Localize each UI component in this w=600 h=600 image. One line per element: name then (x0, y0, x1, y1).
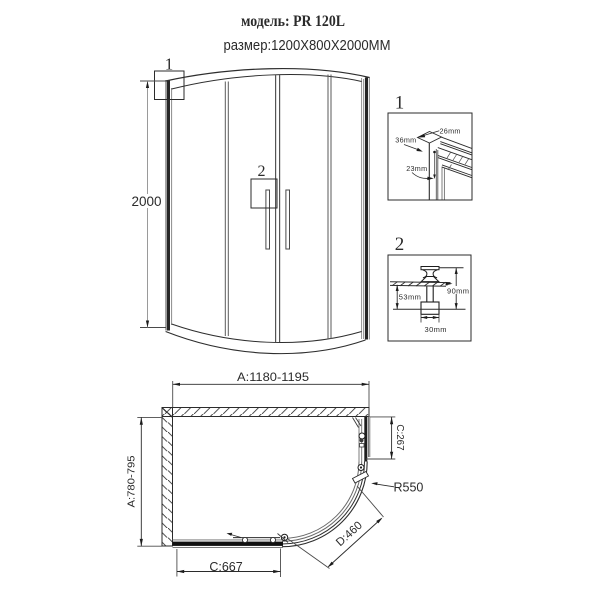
svg-text:A:780-795: A:780-795 (126, 455, 138, 507)
svg-text:1: 1 (395, 93, 405, 114)
svg-text:90mm: 90mm (447, 286, 469, 295)
svg-text:1: 1 (165, 55, 174, 74)
svg-text:26mm: 26mm (440, 126, 461, 135)
svg-text:36mm: 36mm (395, 136, 416, 145)
svg-text:2: 2 (395, 234, 405, 255)
svg-text:23mm: 23mm (406, 164, 427, 173)
svg-text:модель: PR 120L: модель: PR 120L (241, 13, 345, 30)
svg-text:53mm: 53mm (399, 292, 421, 301)
svg-text:2: 2 (258, 163, 266, 180)
svg-text:A:1180-1195: A:1180-1195 (237, 372, 309, 384)
svg-text:размер:1200X800X2000ММ: размер:1200X800X2000ММ (224, 38, 391, 54)
svg-text:R550: R550 (394, 481, 424, 495)
svg-text:30mm: 30mm (425, 325, 447, 334)
svg-text:C:667: C:667 (209, 560, 242, 574)
svg-text:2000: 2000 (131, 194, 161, 209)
svg-text:C:267: C:267 (394, 424, 405, 450)
